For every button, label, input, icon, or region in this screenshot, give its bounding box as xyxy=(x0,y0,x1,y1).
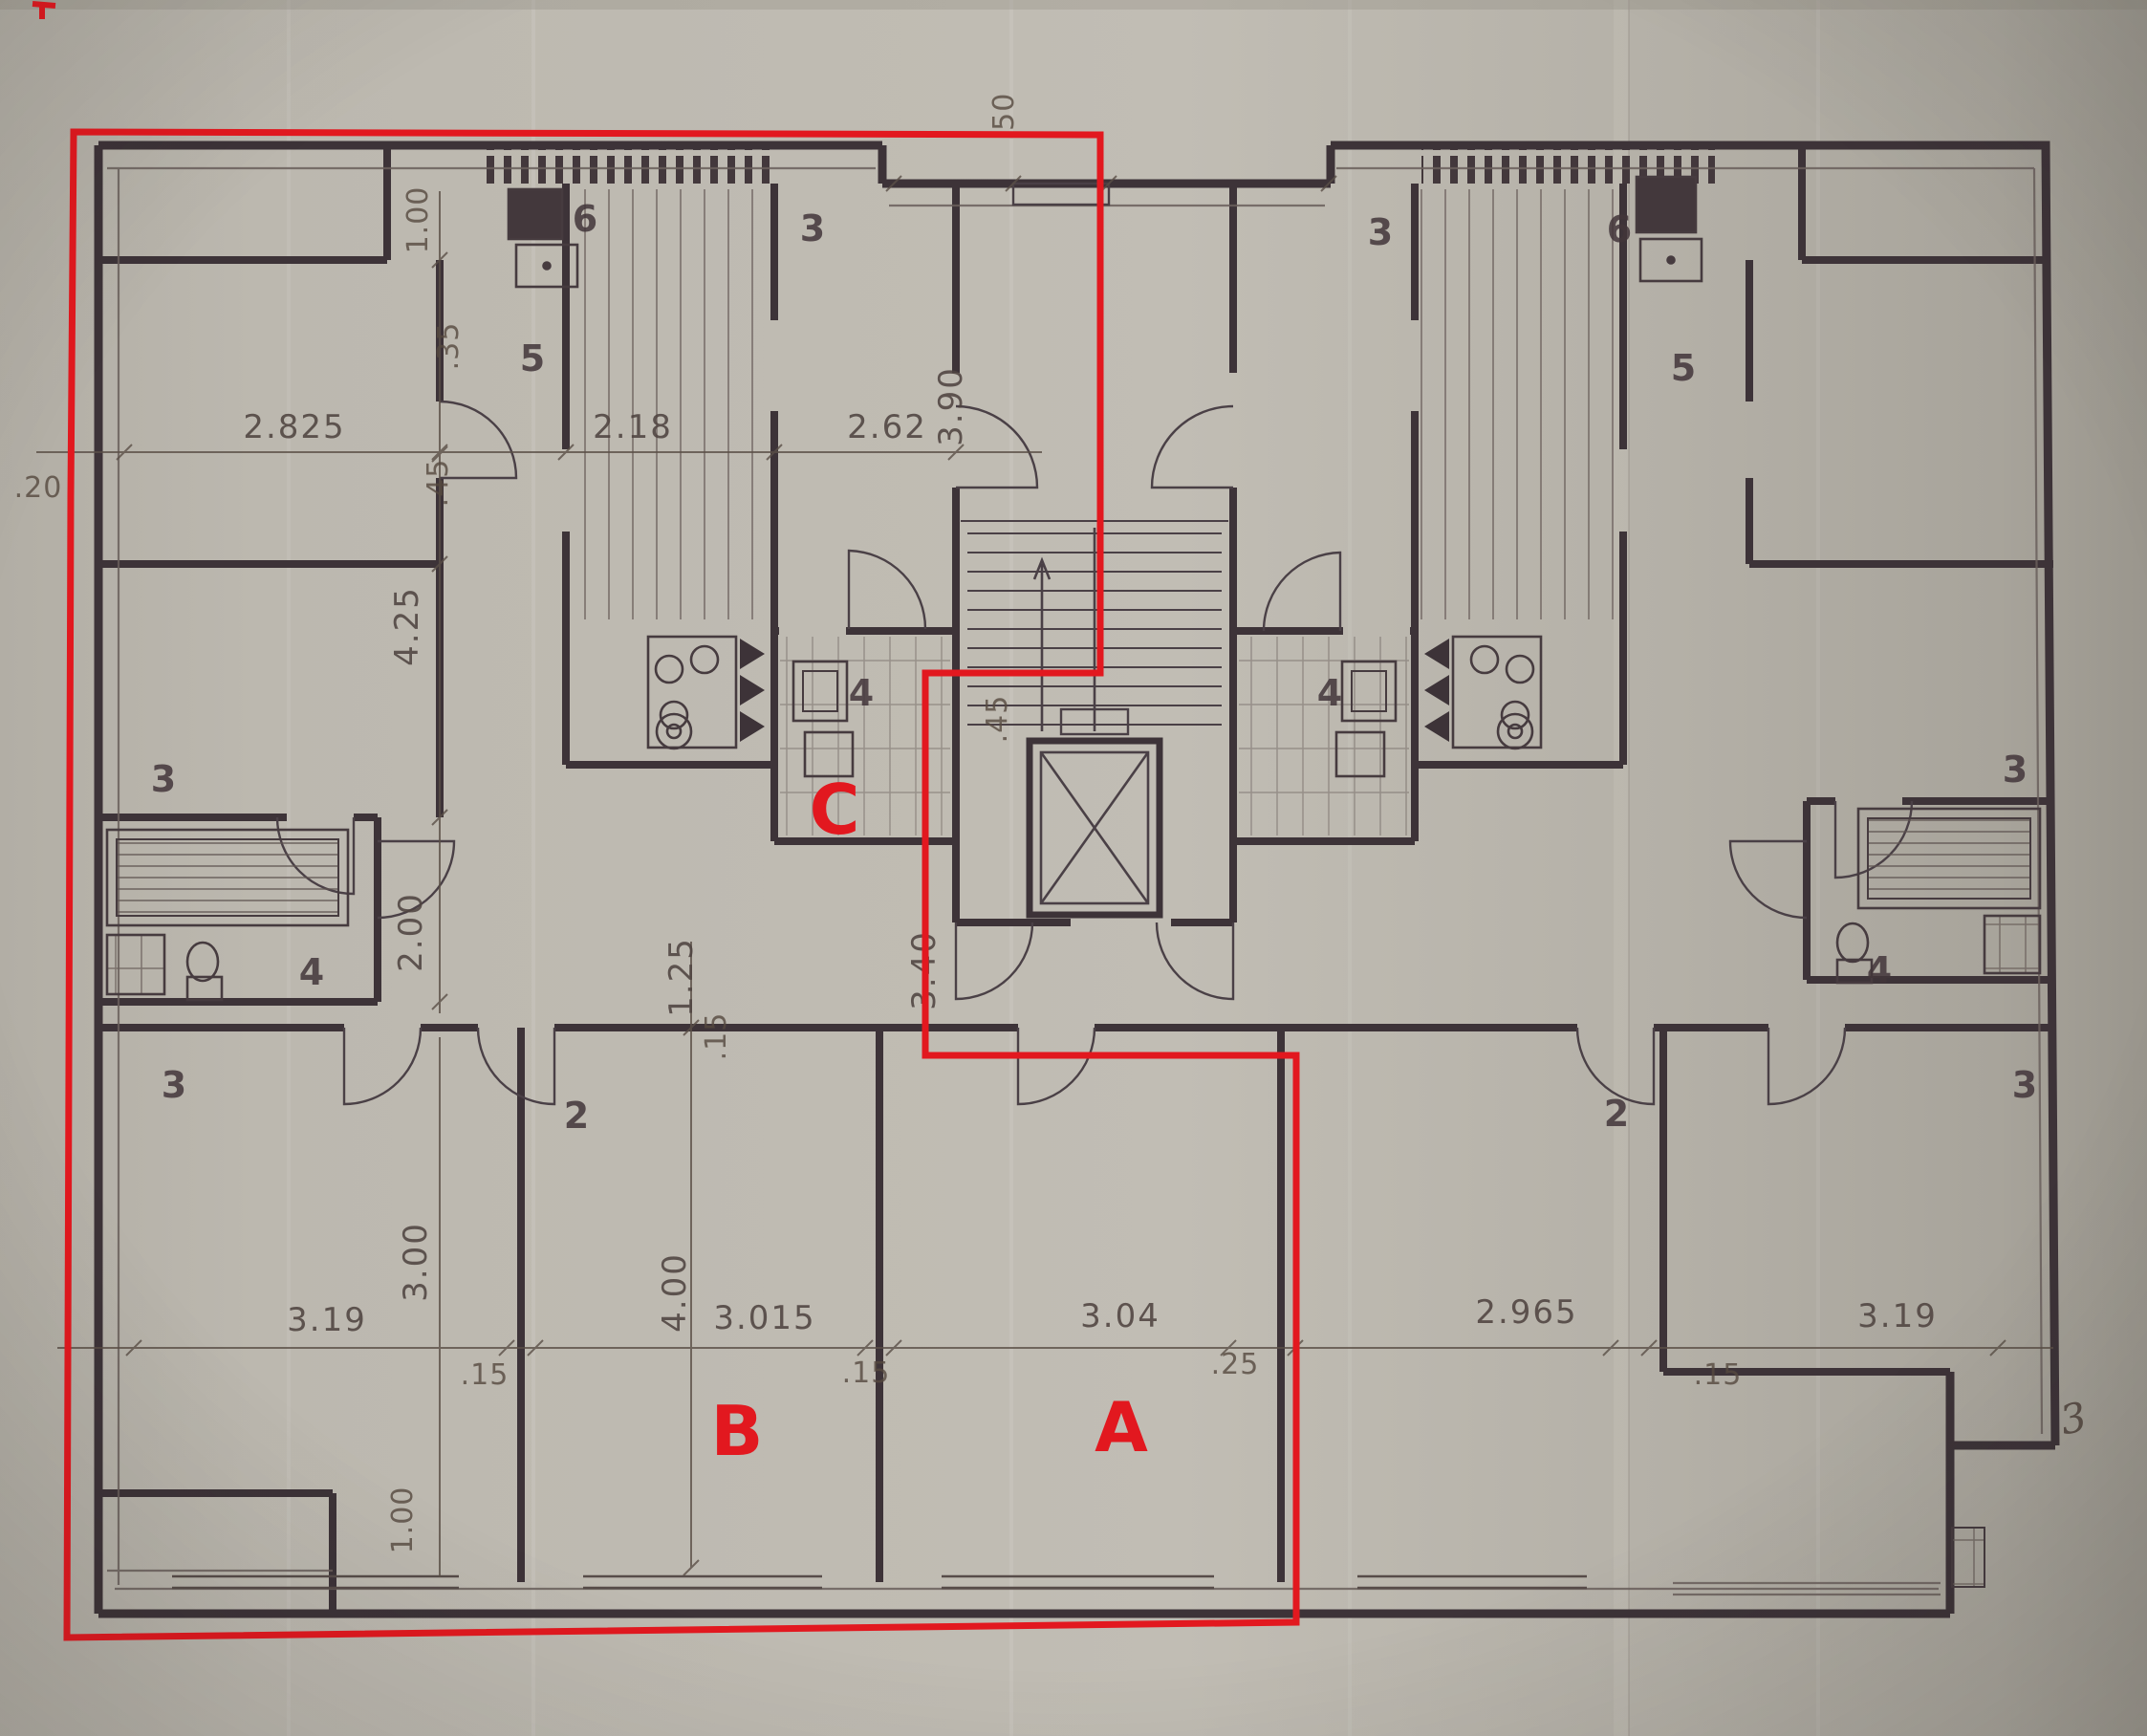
dim-label: 2.00 xyxy=(392,892,430,972)
counter-hatch-left xyxy=(740,639,765,742)
dim-label: .45 xyxy=(981,695,1014,744)
room-number: 3 xyxy=(1368,211,1393,253)
dim-label: .45 xyxy=(422,459,455,508)
room-number: 3 xyxy=(800,207,825,250)
dim-label: 3.015 xyxy=(713,1299,815,1337)
room-number: 2 xyxy=(564,1095,589,1137)
room-number: 4 xyxy=(299,951,324,993)
room-number: 4 xyxy=(1867,949,1892,991)
dim-label: .15 xyxy=(461,1358,510,1392)
room-number: 4 xyxy=(849,672,874,714)
bathtub-left-inner xyxy=(117,839,338,916)
room-number: 3 xyxy=(162,1064,186,1106)
balcony-box-right xyxy=(1637,177,1696,232)
dim-label: .25 xyxy=(1211,1348,1260,1381)
balcony-railing-left xyxy=(483,148,776,184)
counter-hatch-right xyxy=(1424,639,1449,742)
apartment-label-b: B xyxy=(711,1391,764,1471)
room-number: 3 xyxy=(2012,1064,2037,1106)
dim-label: 4.25 xyxy=(388,586,426,666)
room-number: 2 xyxy=(1604,1093,1629,1135)
dim-label: .15 xyxy=(1694,1358,1743,1392)
floorplan-canvas: 2.825 2.18 2.62 .20 1.00 .35 .45 4.25 2.… xyxy=(0,0,2147,1736)
bath-tiles-right xyxy=(1984,916,2040,973)
dim-label: 3.19 xyxy=(287,1301,367,1339)
dim-label: 2.965 xyxy=(1475,1293,1577,1332)
room-number: 6 xyxy=(573,198,597,240)
dim-label: 1.25 xyxy=(662,937,701,1017)
kitchen-tiles-right xyxy=(1420,189,1619,619)
dim-label: 3.00 xyxy=(397,1222,435,1302)
dim-label: .35 xyxy=(432,322,466,371)
apartment-label-a: A xyxy=(1095,1387,1148,1467)
dot xyxy=(544,263,551,270)
dim-label: .20 xyxy=(14,471,63,505)
dim-label: 4.00 xyxy=(656,1252,694,1333)
dim-label: 3.90 xyxy=(932,366,970,446)
dim-label: 3.19 xyxy=(1857,1297,1938,1335)
dim-label: 1.00 xyxy=(386,1486,420,1554)
dim-label: 2.18 xyxy=(593,408,673,446)
loggia-grille xyxy=(1952,1528,1984,1587)
dim-label: 2.825 xyxy=(243,408,345,446)
room-number: 3 xyxy=(151,758,176,800)
dot xyxy=(1668,257,1675,264)
dim-label: 2.62 xyxy=(847,408,927,446)
scanned-floorplan-photo: 2.825 2.18 2.62 .20 1.00 .35 .45 4.25 2.… xyxy=(0,0,2147,1736)
dim-label: 3.04 xyxy=(1080,1297,1160,1335)
apartment-label-c: C xyxy=(810,770,860,850)
room-number: 5 xyxy=(520,337,545,380)
room-number: 6 xyxy=(1607,208,1632,250)
dim-label: .15 xyxy=(842,1356,891,1390)
bath-tiles-left xyxy=(107,935,164,994)
room-number: 5 xyxy=(1671,347,1696,389)
balcony-box-left xyxy=(509,189,562,239)
room-number: 3 xyxy=(2003,749,2028,791)
room-number: 4 xyxy=(1317,672,1342,714)
bathtub-right-inner xyxy=(1868,818,2030,899)
kitchen-tiles-left xyxy=(572,189,770,619)
dim-label: .15 xyxy=(700,1012,733,1061)
dim-label: 1.00 xyxy=(401,186,435,254)
